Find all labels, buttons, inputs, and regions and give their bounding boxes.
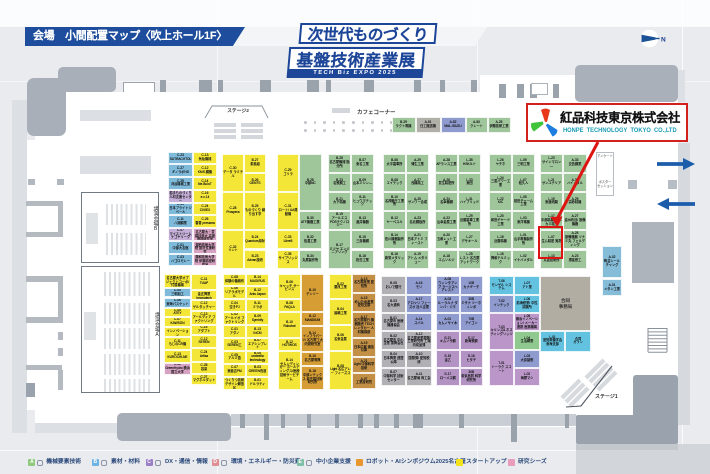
svg-text:N: N	[661, 36, 666, 43]
